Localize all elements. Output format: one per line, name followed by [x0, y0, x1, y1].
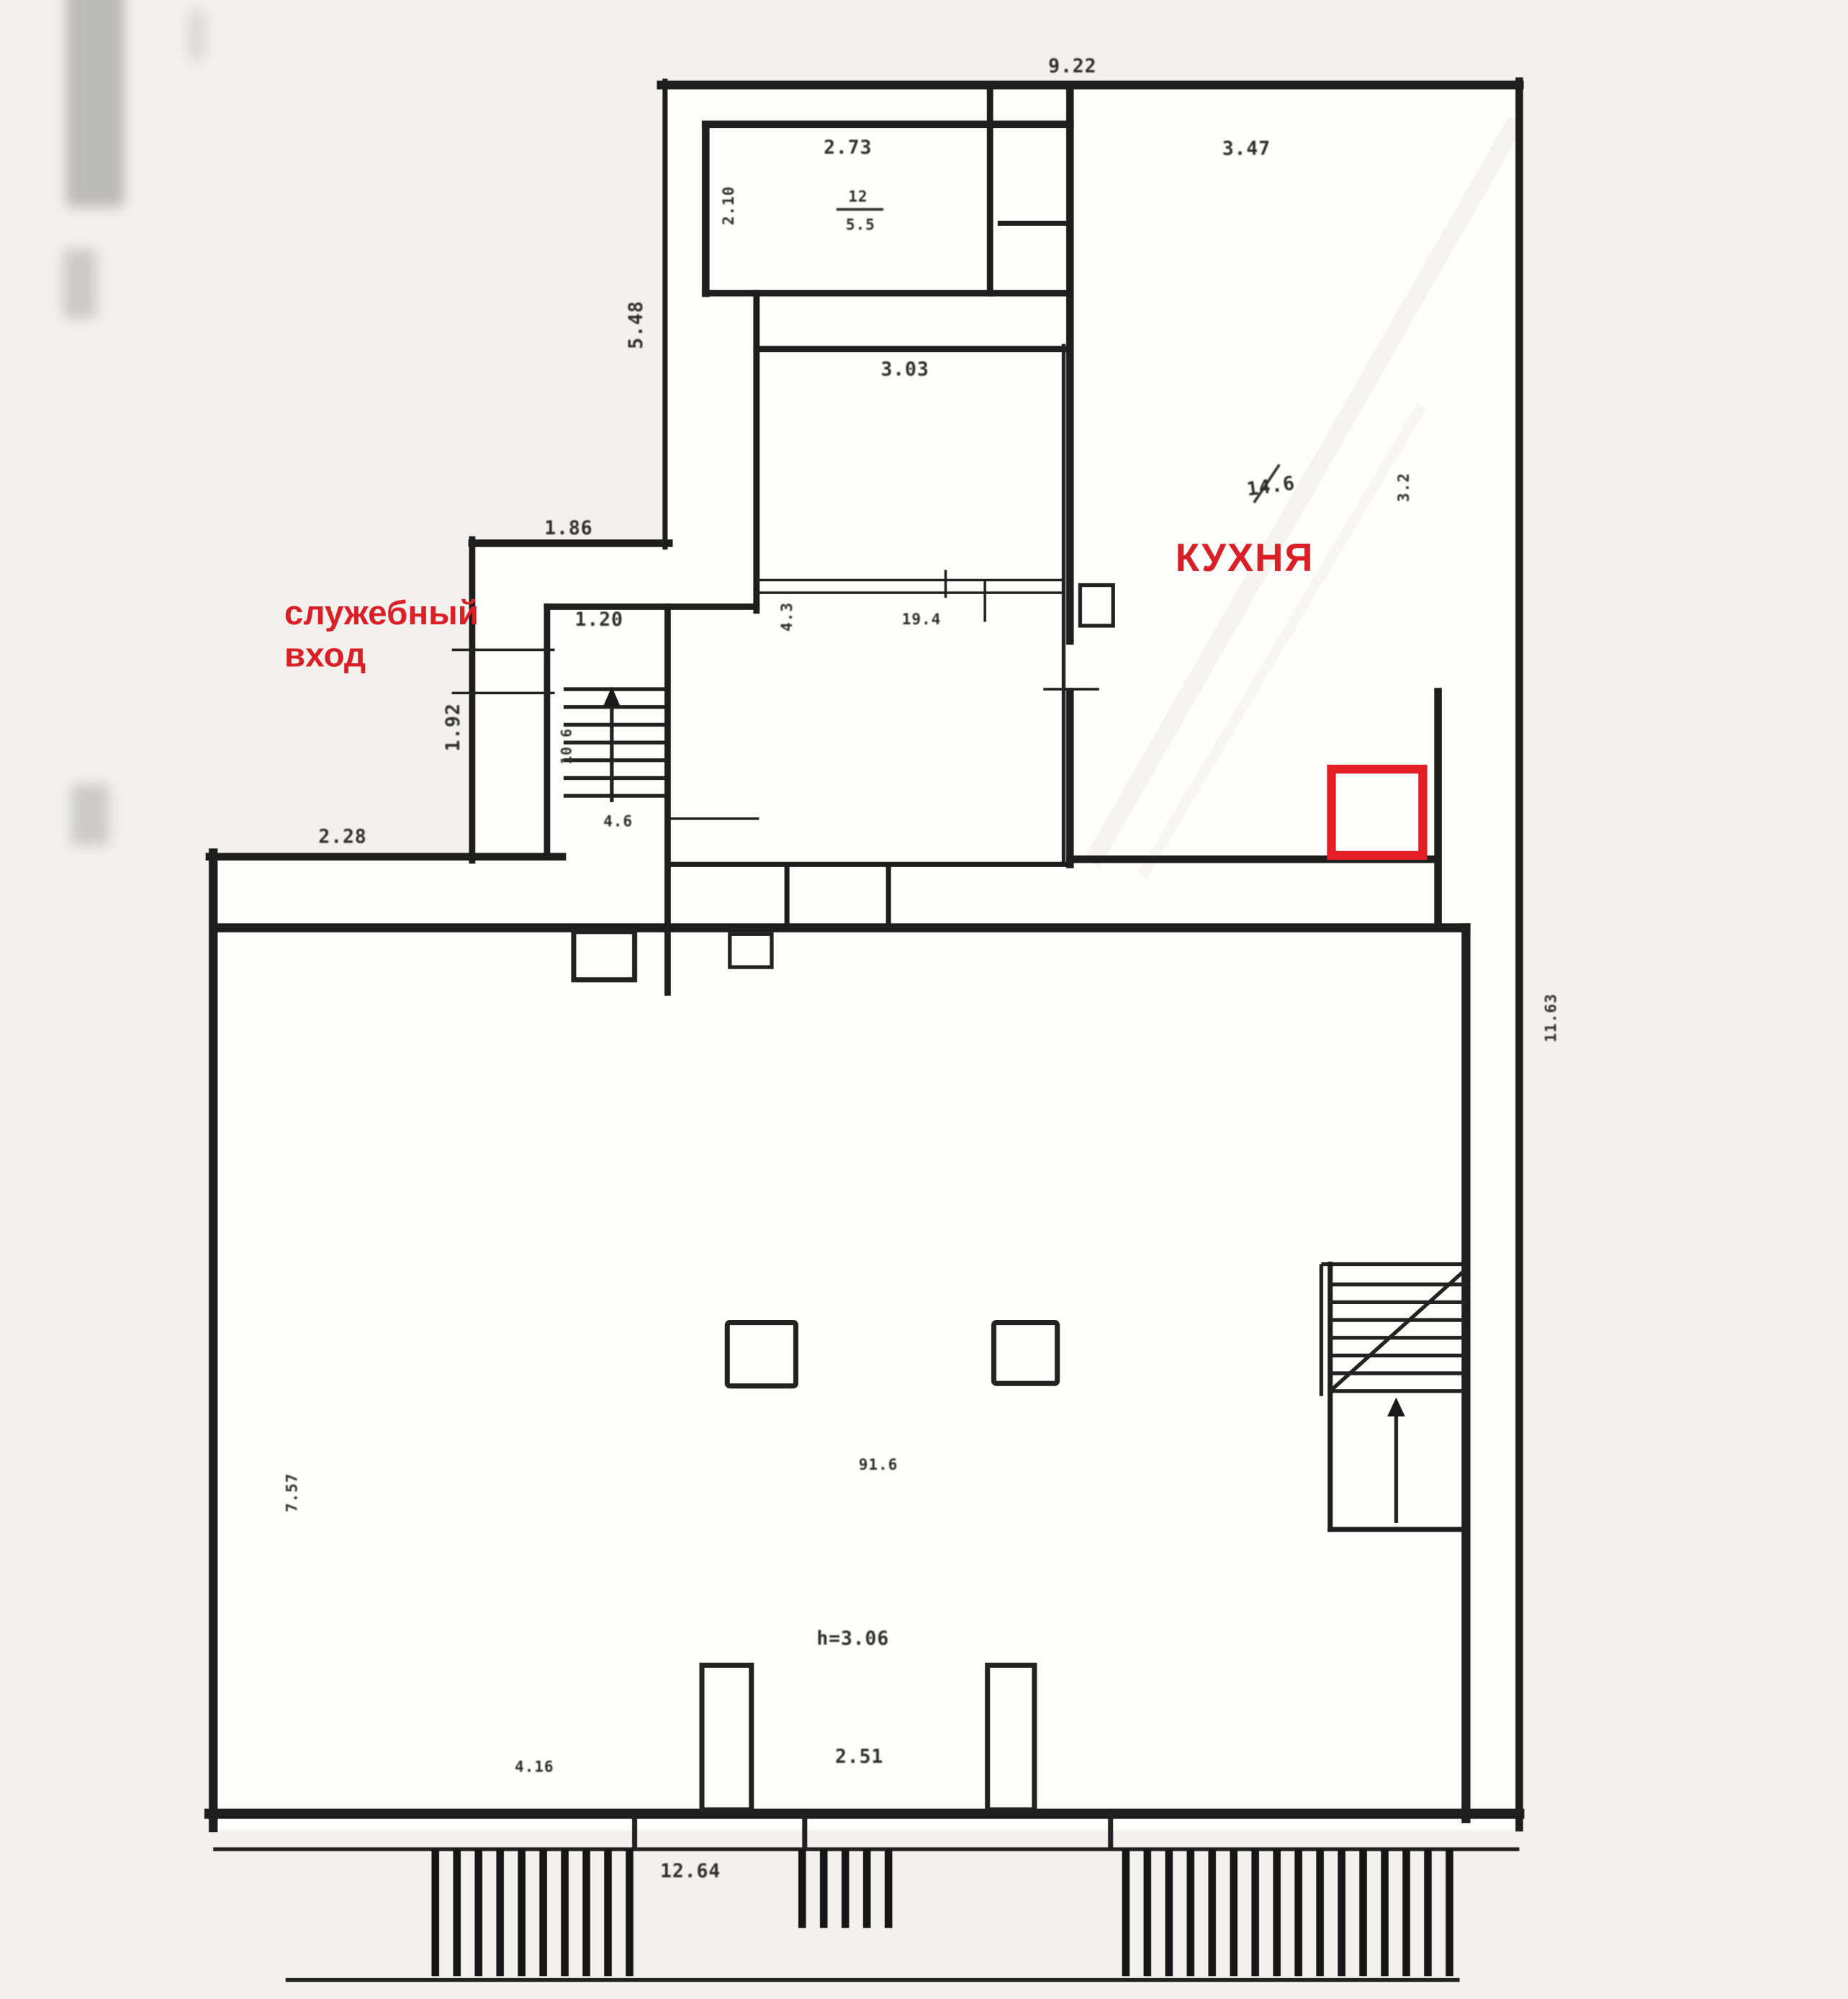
stairs-area: 4.6 — [603, 812, 633, 830]
dim-kitchen-width: 3.47 — [1222, 138, 1271, 160]
dim-ledge-width: 2.28 — [318, 825, 366, 848]
dim-step-width: 1.86 — [544, 517, 592, 539]
stairs-width: 10.6 — [558, 728, 574, 764]
hall-area: 91.6 — [859, 1455, 898, 1473]
dim-right-wall-height: 11.63 — [1541, 994, 1559, 1043]
room12-number: 12 — [848, 187, 867, 205]
kitchen-label: КУХНЯ — [1176, 536, 1315, 580]
dim-room12-depth: 2.10 — [719, 186, 737, 225]
dim-middle-room-width: 3.03 — [880, 359, 929, 381]
dim-left-wall-height: 7.57 — [283, 1473, 301, 1512]
dim-pillar-spacing: 2.51 — [835, 1746, 883, 1768]
service-entrance-label-line1: служебный — [284, 594, 479, 632]
dim-bottom-width: 12.64 — [660, 1860, 721, 1882]
dim-corridor-depth: 1.92 — [442, 703, 464, 751]
dim-corridor-width: 1.20 — [575, 608, 623, 631]
paper-background — [0, 0, 1848, 1999]
room19-area: 19.4 — [902, 610, 941, 628]
dim-middle-room-side: 4.3 — [777, 602, 795, 632]
hall-height-note: h=3.06 — [816, 1627, 889, 1650]
dim-bottom-left-width: 4.16 — [515, 1758, 554, 1776]
dim-kitchen-depth: 3.2 — [1394, 472, 1412, 502]
service-entrance-label-line2: вход — [284, 636, 366, 674]
floor-plan-svg: 9.22 2.73 12 5.5 2.10 3.47 5.48 3.03 14.… — [0, 0, 1848, 1999]
dim-room12-width: 2.73 — [824, 136, 872, 158]
dim-left-upper-wall: 5.48 — [625, 301, 647, 349]
dim-top-width: 9.22 — [1048, 55, 1096, 77]
room12-area: 5.5 — [846, 215, 875, 233]
